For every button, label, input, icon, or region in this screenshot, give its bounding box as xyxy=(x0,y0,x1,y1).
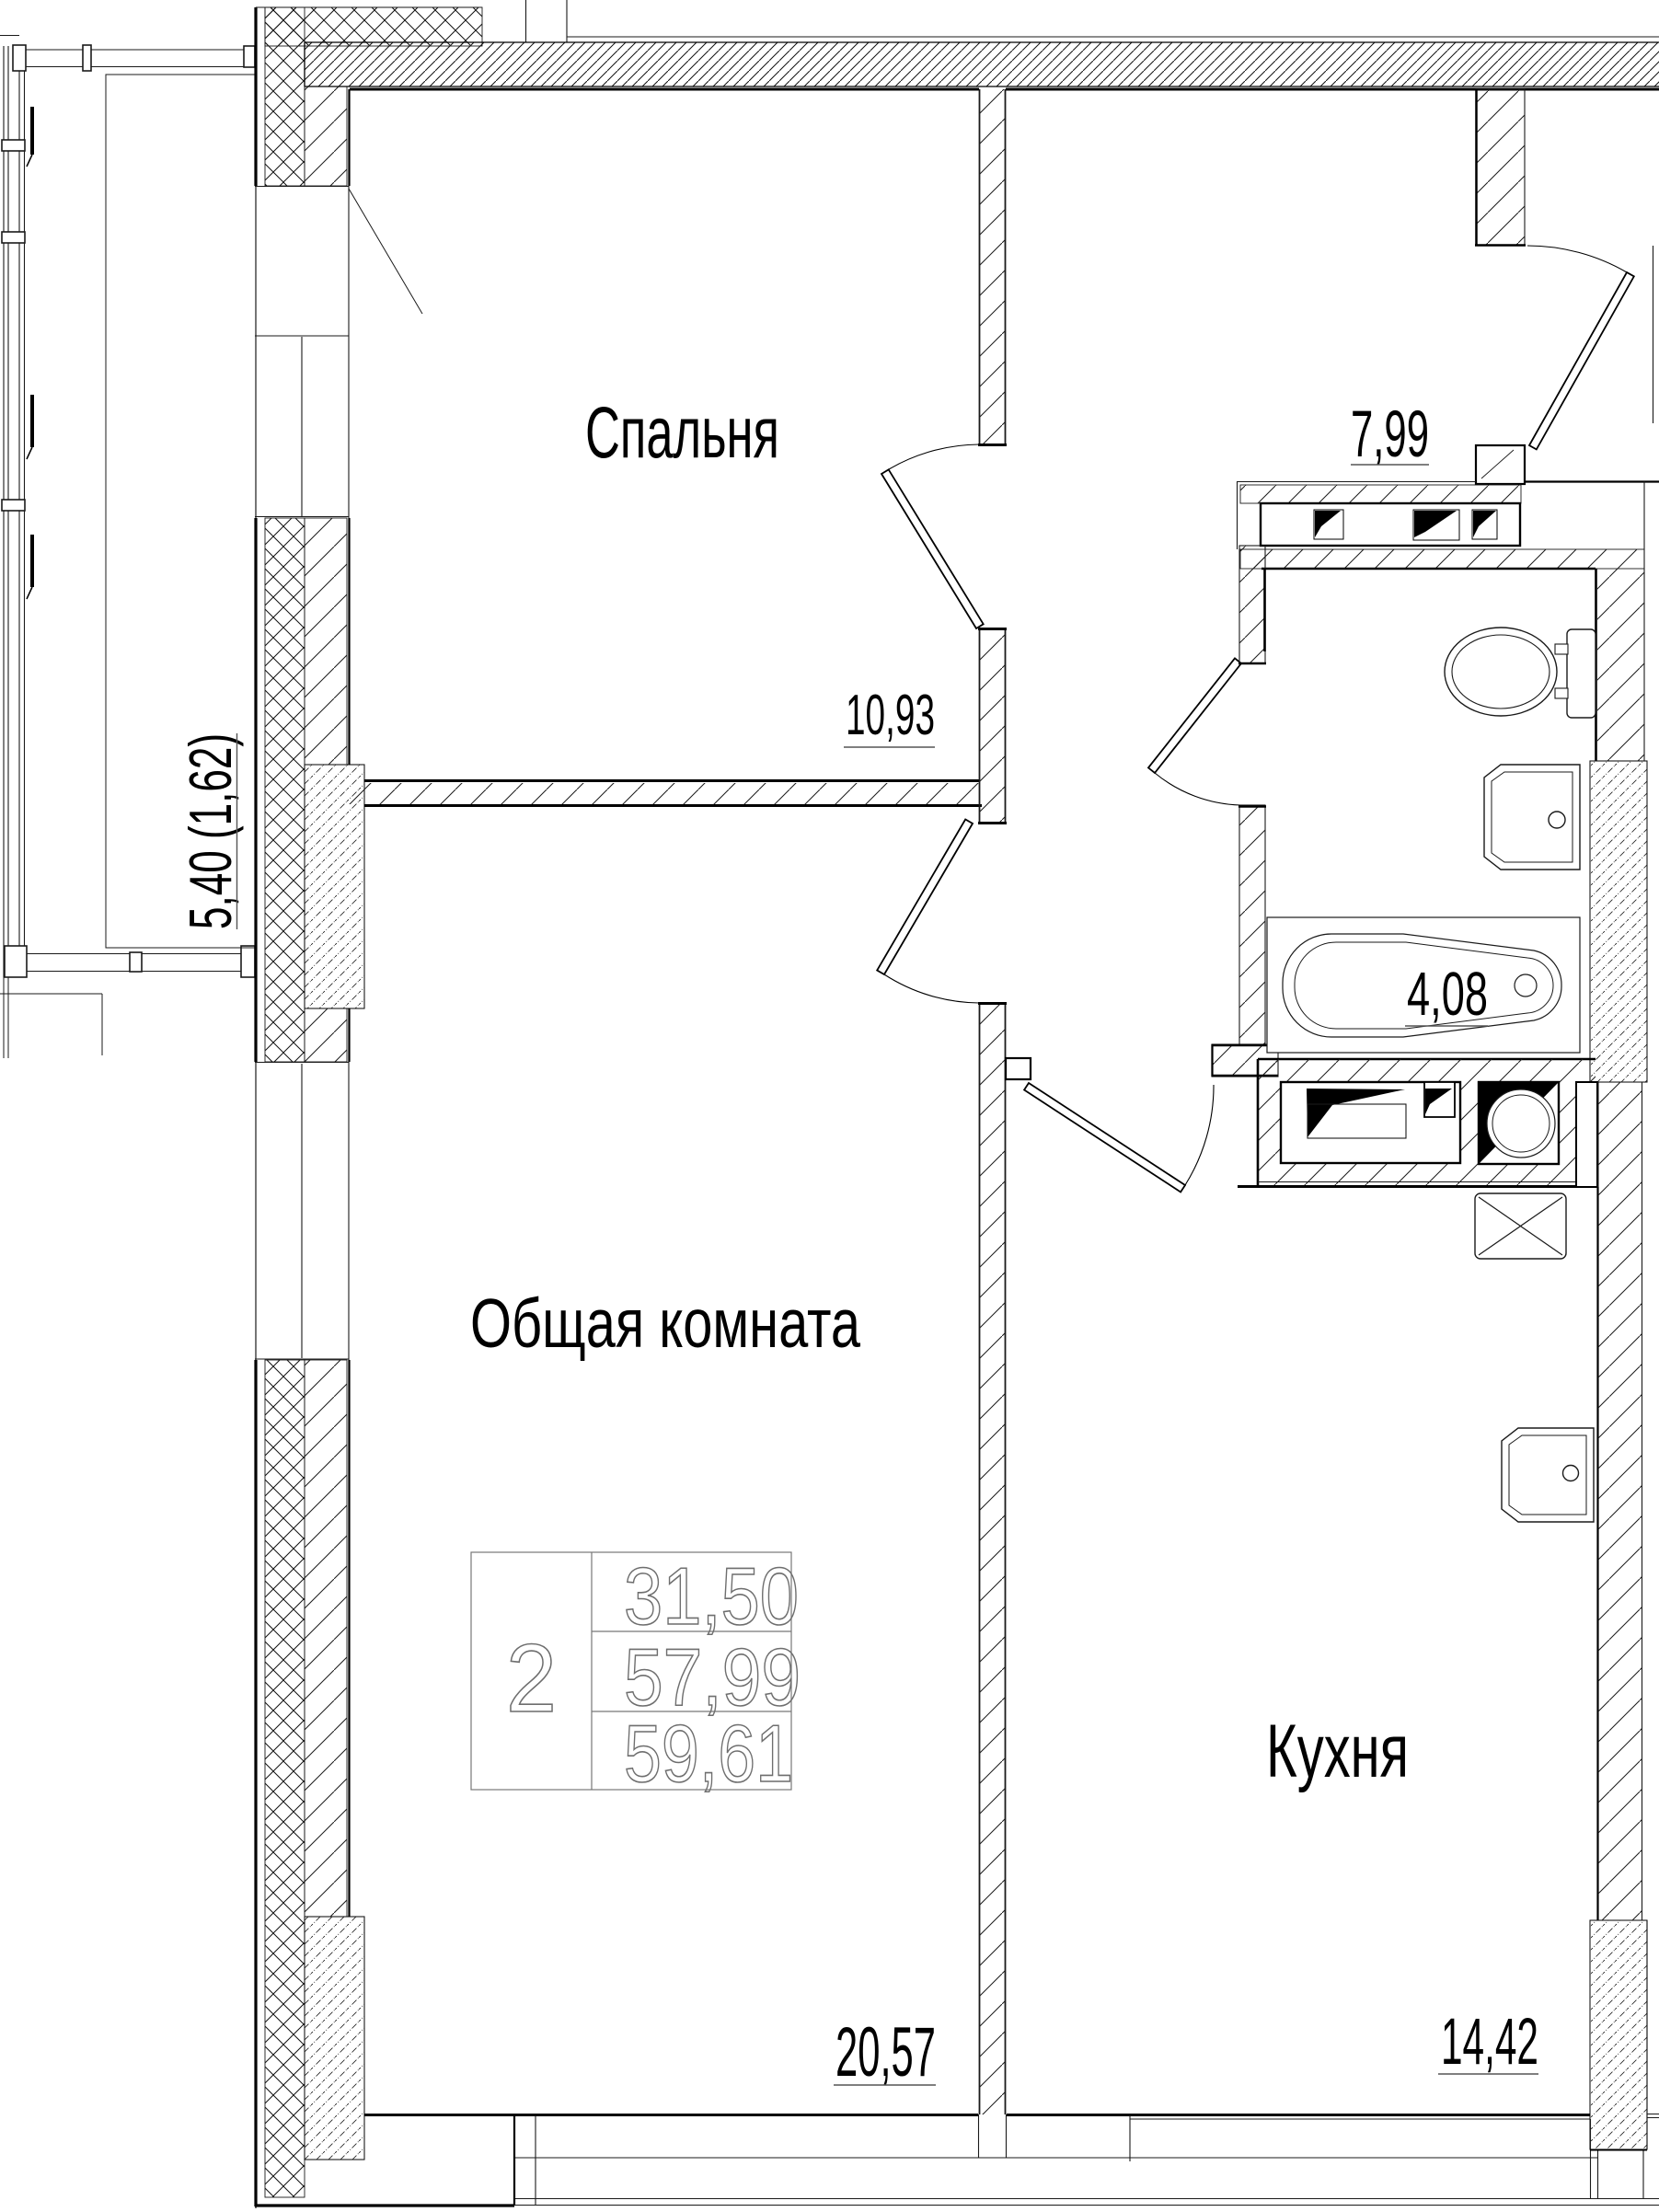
svg-text:Общая комната: Общая комната xyxy=(470,1285,860,1362)
svg-text:14,42: 14,42 xyxy=(1441,2006,1538,2079)
svg-text:4,08: 4,08 xyxy=(1407,960,1488,1029)
svg-text:Кухня: Кухня xyxy=(1266,1710,1409,1793)
svg-text:10,93: 10,93 xyxy=(846,684,935,747)
svg-text:2: 2 xyxy=(506,1625,557,1733)
svg-text:59,61: 59,61 xyxy=(624,1708,793,1799)
svg-text:Спальня: Спальня xyxy=(585,391,779,473)
svg-text:31,50: 31,50 xyxy=(624,1550,799,1642)
svg-text:5,40 (1,62): 5,40 (1,62) xyxy=(177,733,244,929)
svg-text:7,99: 7,99 xyxy=(1351,398,1429,471)
svg-text:20,57: 20,57 xyxy=(835,2013,936,2091)
